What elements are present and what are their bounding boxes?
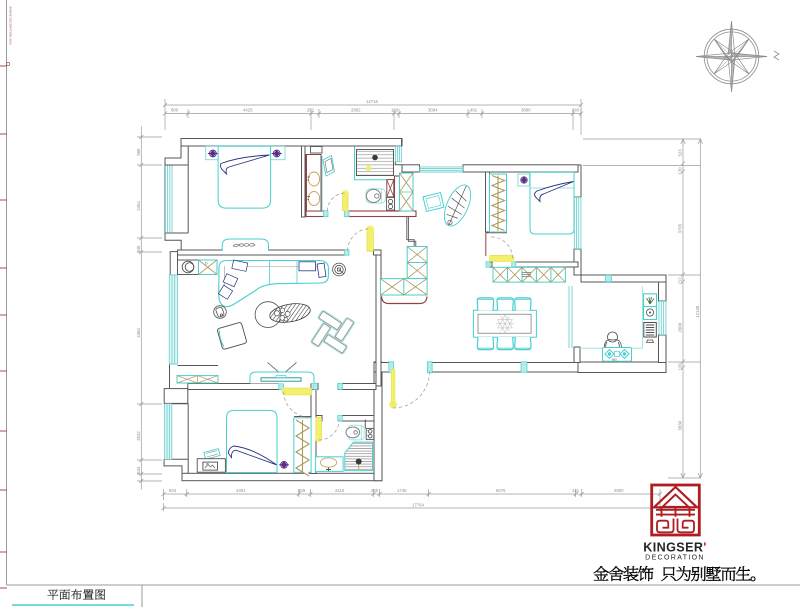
svg-text:4351: 4351: [236, 488, 246, 493]
svg-text:251: 251: [307, 108, 315, 113]
svg-text:1745: 1745: [397, 488, 407, 493]
svg-text:120: 120: [678, 363, 683, 371]
svg-text:600: 600: [612, 358, 617, 362]
svg-text:645: 645: [136, 245, 141, 253]
svg-text:KINGSER': KINGSER': [643, 541, 707, 555]
svg-text:459: 459: [298, 488, 306, 493]
svg-text:DECORATION: DECORATION: [645, 555, 705, 562]
svg-text:17764: 17764: [412, 503, 425, 508]
svg-text:4384: 4384: [136, 328, 141, 338]
svg-text:4425: 4425: [243, 108, 253, 113]
svg-text:14716: 14716: [366, 99, 379, 104]
svg-text:2882: 2882: [351, 108, 361, 113]
svg-text:212: 212: [678, 277, 683, 285]
svg-text:491: 491: [470, 108, 478, 113]
svg-text:523: 523: [678, 149, 683, 157]
svg-text:3765: 3765: [678, 223, 683, 233]
svg-text:JINSHE DECORATION 2016: JINSHE DECORATION 2016: [9, 6, 13, 45]
svg-text:3004: 3004: [428, 108, 438, 113]
svg-text:141: 141: [572, 488, 580, 493]
svg-text:12130: 12130: [695, 305, 700, 318]
svg-text:2800: 2800: [614, 488, 624, 493]
svg-text:2608: 2608: [678, 322, 683, 332]
svg-text:2454: 2454: [136, 201, 141, 211]
svg-text:834: 834: [169, 488, 177, 493]
svg-text:3880: 3880: [521, 108, 531, 113]
svg-text:986: 986: [136, 148, 141, 156]
svg-text:240: 240: [572, 108, 580, 113]
svg-text:240: 240: [371, 488, 379, 493]
svg-text:534: 534: [136, 466, 141, 474]
svg-text:3830: 3830: [678, 420, 683, 430]
svg-text:120: 120: [391, 108, 399, 113]
svg-text:120: 120: [678, 167, 683, 175]
svg-text:2042: 2042: [136, 431, 141, 441]
svg-text:2110: 2110: [335, 488, 345, 493]
svg-text:800: 800: [171, 108, 179, 113]
svg-text:5075: 5075: [496, 488, 506, 493]
